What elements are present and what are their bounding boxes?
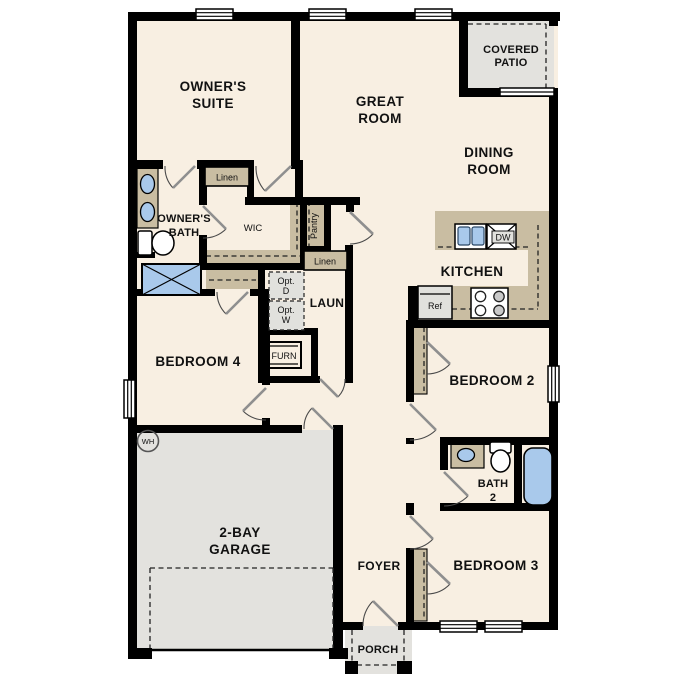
linen-closet-1: Linen <box>205 167 249 186</box>
bath2-label-1: BATH <box>478 478 509 490</box>
wic-label: WIC <box>244 223 263 234</box>
furnace-icon: FURN <box>267 342 301 368</box>
linen2-label: Linen <box>314 257 336 267</box>
bedroom4-label: BEDROOM 4 <box>155 354 240 369</box>
opt-washer-label-1: Opt. <box>277 305 294 315</box>
linen1-label: Linen <box>216 173 238 183</box>
great-room-label-1: GREAT <box>356 94 405 109</box>
bath2-sink-icon <box>458 449 475 462</box>
window <box>548 366 559 402</box>
kitchen-sink-icon <box>455 224 486 249</box>
dining-room-label-2: ROOM <box>467 162 511 177</box>
bedroom3-closet <box>412 549 427 621</box>
bathtub-icon <box>524 448 552 505</box>
owners-suite-label-2: SUITE <box>192 96 234 111</box>
bedroom2-closet <box>412 324 427 394</box>
opt-washer-box: Opt. W <box>269 301 304 330</box>
bedroom3-label: BEDROOM 3 <box>453 558 538 573</box>
water-heater-label: WH <box>142 437 155 446</box>
owners-suite-label-1: OWNER'S <box>180 79 247 94</box>
covered-patio-label-1: COVERED <box>483 44 539 56</box>
floor-plan: DW Ref Opt. D Opt. W <box>0 0 687 687</box>
toilet-icon <box>490 442 511 472</box>
window <box>196 9 233 20</box>
window <box>309 9 346 20</box>
porch-post-right <box>397 661 412 674</box>
dining-room-label-1: DINING <box>464 145 514 160</box>
owners-bath-label-1: OWNER'S <box>157 213 211 225</box>
foyer-label: FOYER <box>358 559 401 573</box>
garage-label-1: 2-BAY <box>219 525 260 540</box>
stove-icon <box>471 288 508 318</box>
owners-bath-sink-icon <box>141 175 155 194</box>
sliding-door <box>500 88 554 96</box>
porch-label: PORCH <box>358 644 399 656</box>
linen-closet-2: Linen <box>304 251 347 270</box>
opt-dryer-box: Opt. D <box>269 272 304 299</box>
refrigerator-label: Ref <box>428 301 443 311</box>
great-room-label-2: ROOM <box>358 111 402 126</box>
window <box>485 621 522 632</box>
kitchen-label: KITCHEN <box>441 264 504 279</box>
owners-bath-label-2: BATH <box>169 227 200 239</box>
dishwasher-icon: DW <box>487 224 516 249</box>
laundry-label: LAUN <box>310 296 345 310</box>
floor-plan-canvas: DW Ref Opt. D Opt. W <box>0 0 687 687</box>
window <box>440 621 477 632</box>
opt-dryer-label-1: Opt. <box>277 276 294 286</box>
garage-slab <box>137 430 333 650</box>
bath2-label-2: 2 <box>490 492 496 504</box>
furnace-label: FURN <box>272 351 297 361</box>
owners-bath-sink-icon <box>141 203 155 222</box>
dishwasher-label: DW <box>496 233 511 243</box>
refrigerator-icon: Ref <box>418 286 452 319</box>
garage-label-2: GARAGE <box>209 542 271 557</box>
shower-icon <box>142 264 201 295</box>
opt-dryer-label-2: D <box>283 286 290 296</box>
pantry-label: Pantry <box>309 212 319 239</box>
porch-post-left <box>345 661 358 674</box>
opt-washer-label-2: W <box>282 315 291 325</box>
window <box>415 9 452 20</box>
covered-patio-label-2: PATIO <box>495 57 528 69</box>
bedroom2-label: BEDROOM 2 <box>449 373 534 388</box>
window <box>124 380 135 418</box>
